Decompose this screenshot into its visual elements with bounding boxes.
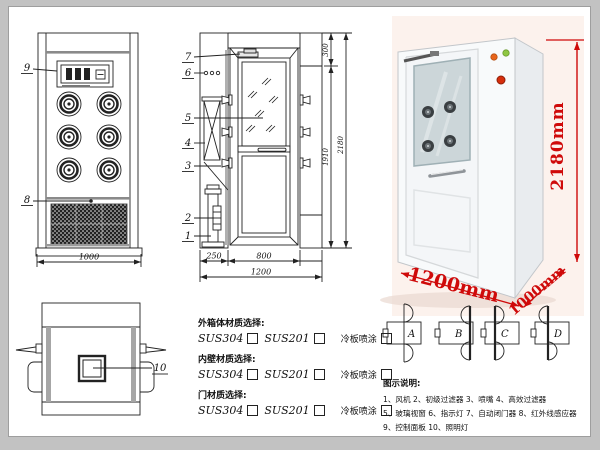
callout-indicator-light: 6 <box>185 68 192 79</box>
handle-slot <box>258 148 286 151</box>
material-option: SUS201 <box>264 332 309 345</box>
cabinet-side-face <box>515 38 543 298</box>
callout-lamp: 10 <box>154 363 167 374</box>
door-option-b-label: B <box>454 329 462 340</box>
legend-line-3: 9、控制面板 10、照明灯 <box>383 421 591 435</box>
wall-nozzles <box>222 95 310 168</box>
dim-300: 300 <box>322 43 330 57</box>
callout-door-closer: 7 <box>185 52 192 63</box>
callout-control-panel: 9 <box>24 63 31 74</box>
dim-2180: 2180 <box>337 136 345 155</box>
callout-hepa-filter: 4 <box>184 138 191 149</box>
material-option: SUS201 <box>264 368 309 381</box>
callout-fan: 1 <box>185 231 191 242</box>
checkbox-icon <box>314 333 325 344</box>
outer-box-material-title: 外箱体材质选择: <box>198 316 388 329</box>
material-option: SUS304 <box>198 332 243 345</box>
material-option: SUS201 <box>264 404 309 417</box>
callout-glass-window: 5 <box>185 113 191 124</box>
checkbox-icon <box>247 405 258 416</box>
product-photo: 2180mm 1200mm 1000mm <box>380 16 584 319</box>
door-material-options: SUS304 SUS201 冷板喷涂 <box>198 404 388 417</box>
material-option: SUS304 <box>198 404 243 417</box>
callout-grille: 8 <box>24 195 30 206</box>
air-return-grille <box>51 204 127 244</box>
legend-line-1: 1、风机 2、初级过滤器 3、喷嘴 4、高效过滤器 <box>383 393 591 407</box>
legend-line-2: 5、玻璃视窗 6、指示灯 7、自动闭门器 8、红外线感应器 <box>383 407 591 421</box>
checkbox-icon <box>314 369 325 380</box>
glass-hatch-marks <box>246 78 278 132</box>
dim-250: 250 <box>205 252 221 261</box>
front-view-drawing <box>21 33 142 267</box>
legend-block: 图示说明: 1、风机 2、初级过滤器 3、喷嘴 4、高效过滤器 5、玻璃视窗 6… <box>383 377 591 435</box>
outer-box-material-options: SUS304 SUS201 冷板喷涂 <box>198 332 388 345</box>
dim-1200: 1200 <box>251 268 271 277</box>
door-option-a-label: A <box>407 329 415 340</box>
dim-1910: 1910 <box>322 148 330 166</box>
top-view-drawing <box>16 303 168 415</box>
callout-primary-filter: 2 <box>184 213 191 224</box>
inner-wall-material-options: SUS304 SUS201 冷板喷涂 <box>198 368 388 381</box>
door-closer <box>238 49 258 57</box>
checkbox-icon <box>314 405 325 416</box>
material-option: SUS304 <box>198 368 243 381</box>
material-selection-block: 外箱体材质选择: SUS304 SUS201 冷板喷涂 内壁材质选择: SUS3… <box>198 316 388 424</box>
callout-nozzle: 3 <box>185 161 191 172</box>
door-material-title: 门材质选择: <box>198 388 388 401</box>
front-width-value: 1000 <box>79 253 99 262</box>
door-option-c-label: C <box>501 329 509 340</box>
legend-title: 图示说明: <box>383 377 591 389</box>
photo-height-label: 2180mm <box>548 101 568 190</box>
material-option: 冷板喷涂 <box>341 368 377 381</box>
dim-800: 800 <box>256 252 271 261</box>
inner-wall-material-title: 内壁材质选择: <box>198 352 388 365</box>
material-option: 冷板喷涂 <box>341 404 377 417</box>
checkbox-icon <box>247 369 258 380</box>
glass-window <box>242 62 286 146</box>
side-door <box>230 48 298 245</box>
material-option: 冷板喷涂 <box>341 332 377 345</box>
door-option-d-label: D <box>553 329 562 340</box>
checkbox-icon <box>381 333 392 344</box>
checkbox-icon <box>247 333 258 344</box>
datasheet-page: 2180mm 1200mm 1000mm <box>0 0 600 450</box>
